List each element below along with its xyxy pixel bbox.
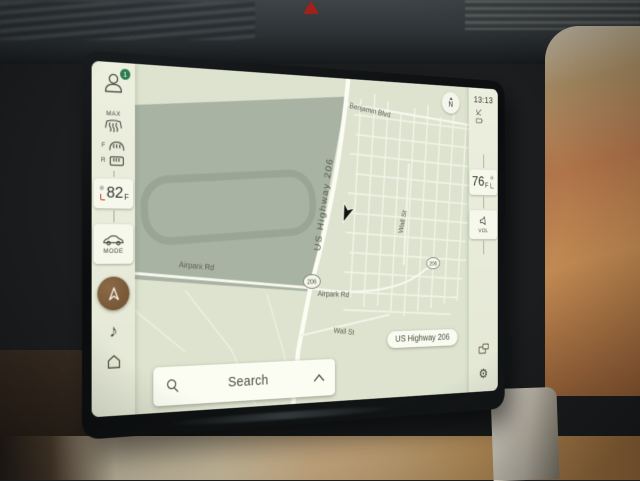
navigation-map[interactable]: Benjamin Blvd US Highway 206 Wall St Air… xyxy=(135,64,469,415)
max-defrost-icon xyxy=(103,117,124,134)
slider-line xyxy=(483,197,484,209)
right-sidebar: 13:13 76 F ❄ xyxy=(469,87,498,392)
driver-temp-unit: F xyxy=(124,193,129,202)
status-icons xyxy=(476,108,491,124)
passenger-temp-control[interactable]: 76 F ❄ xyxy=(469,169,497,195)
music-note-icon: ♪ xyxy=(109,321,117,341)
seat-heat-icon xyxy=(98,192,106,201)
passenger-temp-value: 76 xyxy=(472,174,484,190)
search-icon xyxy=(164,377,180,395)
passenger-temp-unit: F xyxy=(485,182,488,190)
phone-disconnected-icon xyxy=(476,108,482,116)
settings-button[interactable]: ⚙ xyxy=(479,367,488,381)
volume-label: VOL xyxy=(478,228,488,234)
search-label: Search xyxy=(181,371,313,393)
speaker-icon xyxy=(478,215,488,226)
navigation-arrow-icon xyxy=(105,285,121,302)
front-defrost-button[interactable]: F xyxy=(101,139,125,153)
mode-label: MODE xyxy=(103,248,123,255)
home-icon xyxy=(105,352,123,371)
driver-temp-control[interactable]: ❄ 82 F xyxy=(94,178,134,208)
seat-icon xyxy=(489,182,494,190)
svg-text:206: 206 xyxy=(429,261,437,267)
air-vent-left xyxy=(0,2,255,40)
compass-button[interactable]: N xyxy=(442,92,460,115)
volume-slider-line[interactable] xyxy=(483,241,484,255)
svg-text:206: 206 xyxy=(307,279,317,286)
temp-slider-track[interactable] xyxy=(113,171,114,177)
map-label-airpark-rd-east: Airpark Rd xyxy=(317,289,349,299)
battery-status-icon xyxy=(476,118,484,124)
chevron-up-icon[interactable] xyxy=(313,373,326,383)
rear-defrost-label: R xyxy=(101,157,106,164)
car-icon xyxy=(102,233,125,246)
volume-button[interactable]: VOL xyxy=(469,210,497,239)
infotainment-screen: 1 MAX F R xyxy=(82,50,505,440)
route-shield-east: 206 xyxy=(427,258,440,269)
rear-defrost-icon xyxy=(108,154,126,167)
compass-label: N xyxy=(448,101,453,109)
current-street-pill: US Highway 206 xyxy=(387,329,457,348)
screen-content: 1 MAX F R xyxy=(92,61,498,418)
gear-icon: ⚙ xyxy=(479,367,488,382)
front-defrost-icon xyxy=(108,139,126,153)
passenger-temp-slider[interactable] xyxy=(483,154,484,168)
media-app-button[interactable]: ♪ xyxy=(109,322,117,340)
front-defrost-label: F xyxy=(101,142,105,149)
rear-defrost-button[interactable]: R xyxy=(101,154,126,168)
airport-terrain xyxy=(135,83,346,295)
max-defrost-button[interactable]: MAX xyxy=(103,110,124,134)
driver-temp-value: 82 xyxy=(107,185,124,203)
clock: 13:13 xyxy=(474,95,493,106)
profile-button[interactable]: 1 xyxy=(101,69,126,101)
slider-line xyxy=(113,210,114,222)
screen-bezel: 1 MAX F R xyxy=(82,50,505,440)
drive-mode-button[interactable]: MODE xyxy=(94,224,134,264)
profile-badge: 1 xyxy=(120,69,130,81)
red-emblem xyxy=(303,1,319,14)
picture-in-picture-icon xyxy=(478,342,490,355)
home-button[interactable] xyxy=(105,352,123,376)
navigation-app-button[interactable] xyxy=(97,276,129,310)
display-share-button[interactable] xyxy=(478,342,490,359)
leather-dashboard-right xyxy=(545,26,640,396)
route-shield-main: 206 xyxy=(303,275,320,289)
left-sidebar: 1 MAX F R xyxy=(92,61,135,418)
